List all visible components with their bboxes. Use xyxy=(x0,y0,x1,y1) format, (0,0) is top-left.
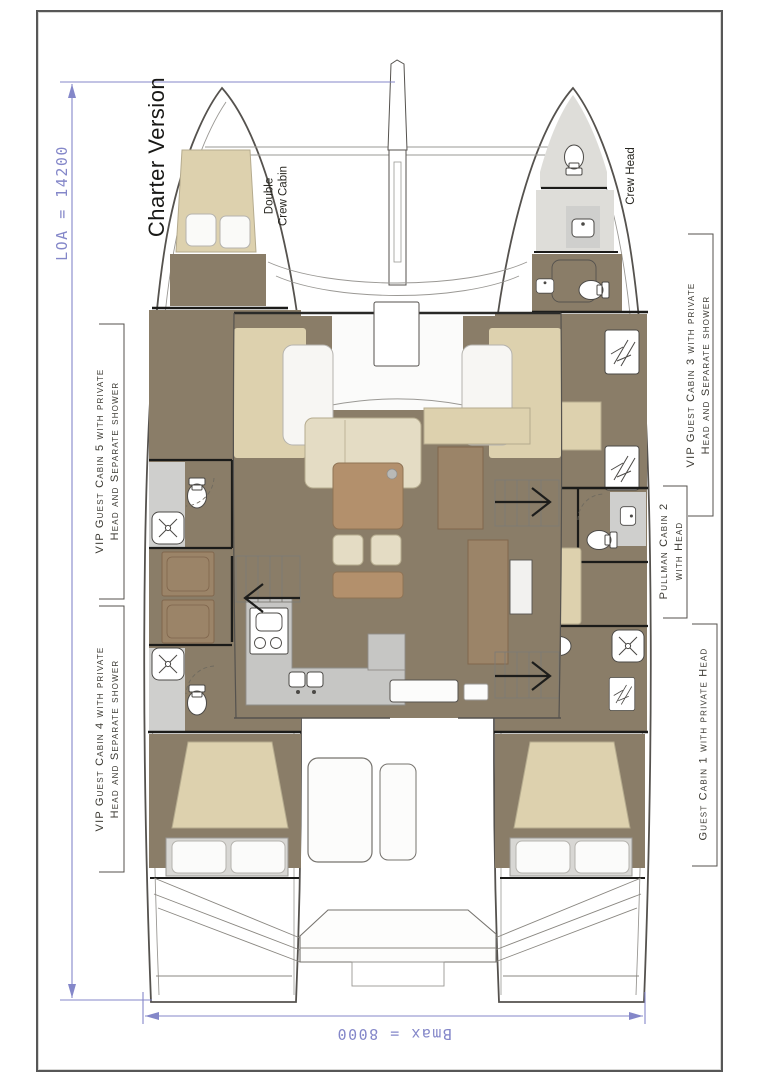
toilet-icon xyxy=(587,531,617,550)
stool xyxy=(333,535,363,565)
shower-icon xyxy=(612,630,644,662)
deck-hatch-icon xyxy=(605,446,639,490)
double-crew-cabin-label: Double Crew Cabin xyxy=(263,166,290,226)
dimension-arrow-icon xyxy=(145,1012,159,1020)
pillow xyxy=(516,841,570,873)
pillow xyxy=(220,216,250,248)
toilet-icon xyxy=(579,281,609,300)
sink-icon xyxy=(536,279,554,293)
crew-head-label: Crew Head xyxy=(625,147,639,205)
deck-hatch-icon xyxy=(605,330,639,374)
cabinet xyxy=(424,408,530,444)
toilet-icon xyxy=(188,685,207,715)
fridge xyxy=(510,560,532,614)
cabin-label-vip-3: VIP Guest Cabin 3 with private Head and … xyxy=(684,283,714,468)
cabin-label-vip-4: VIP Guest Cabin 4 with private Head and … xyxy=(93,647,123,832)
deck-hatch-icon xyxy=(609,678,635,711)
stove-icon xyxy=(250,608,288,654)
pillow xyxy=(172,841,226,873)
shower-icon xyxy=(152,648,184,680)
cabinet xyxy=(438,447,483,529)
loa-dimension-label: LOA = 14200 xyxy=(53,145,71,261)
dimension-arrow-icon xyxy=(68,984,76,998)
dimension-arrow-icon xyxy=(629,1012,643,1020)
sink-icon xyxy=(620,507,635,526)
pillow xyxy=(231,841,285,873)
bowsprit xyxy=(268,60,527,296)
sink-icon xyxy=(572,219,594,237)
shower-icon xyxy=(152,512,184,544)
saloon-door-step xyxy=(390,680,458,702)
pillow xyxy=(575,841,629,873)
bmax-dimension-label: Bmax = 8000 xyxy=(336,1025,452,1043)
pillow xyxy=(186,214,216,246)
toilet-icon xyxy=(565,145,584,175)
dimension-arrow-icon xyxy=(68,84,76,98)
saloon xyxy=(232,302,562,718)
cabin-label-pullman-2: Pullman Cabin 2 with Head xyxy=(657,503,687,600)
version-title: Charter Version xyxy=(144,77,170,237)
cabin-label-vip-5: VIP Guest Cabin 5 with private Head and … xyxy=(93,369,123,554)
sideboard xyxy=(333,572,403,598)
layout-page: Charter Version LOA = 14200 Bmax = 8000 … xyxy=(0,0,763,1080)
nav-cabinet xyxy=(468,540,508,664)
cockpit-table xyxy=(308,758,372,862)
cabin-label-guest-1: Guest Cabin 1 with private Head xyxy=(697,648,712,841)
mast-step-locker xyxy=(374,302,419,366)
cockpit-bench xyxy=(380,764,416,860)
stool xyxy=(371,535,401,565)
